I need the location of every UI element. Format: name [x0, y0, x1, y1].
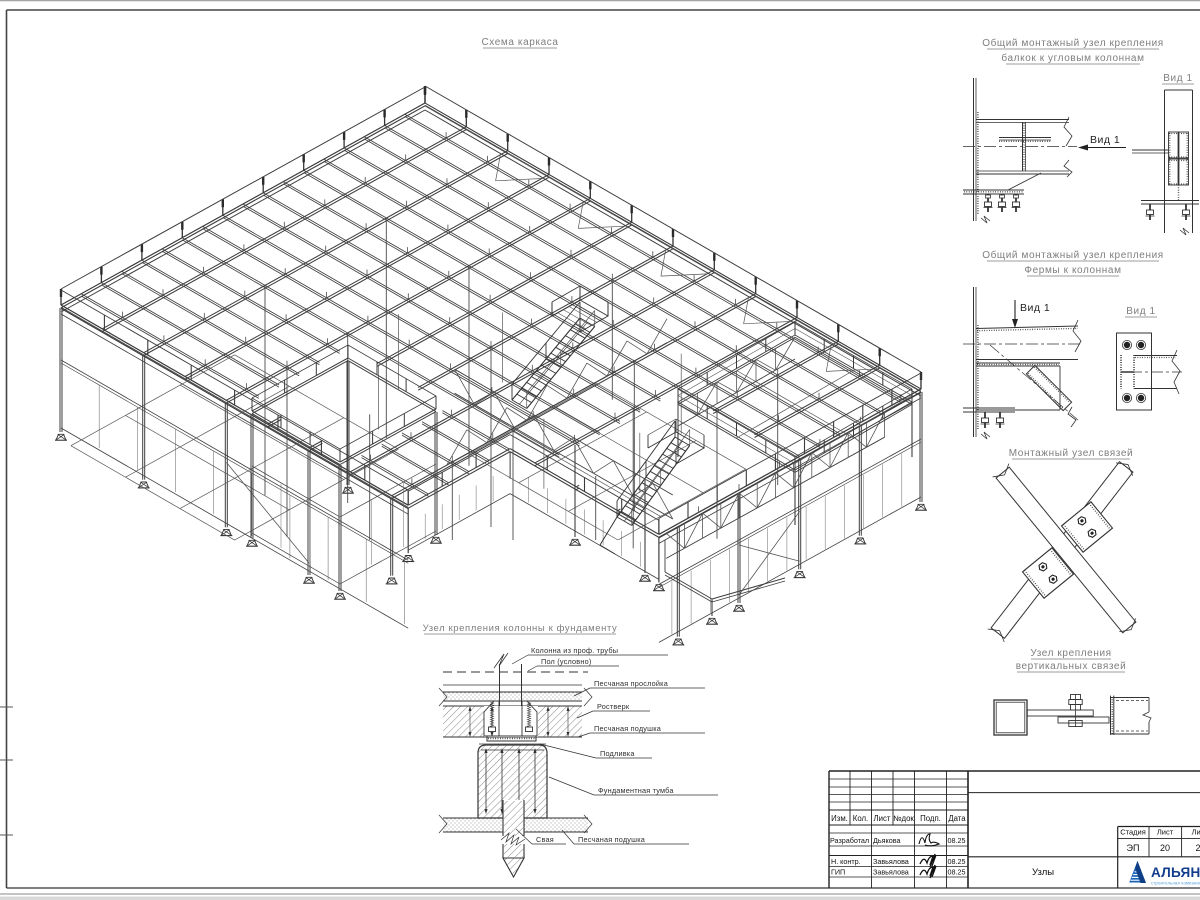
svg-text:строительная компания: строительная компания	[1151, 881, 1200, 886]
svg-text:20: 20	[1160, 843, 1170, 853]
svg-text:Пол (условно): Пол (условно)	[541, 657, 591, 666]
svg-text:Узел крепления: Узел крепления	[1030, 648, 1111, 659]
svg-text:Вид 1: Вид 1	[1090, 134, 1120, 146]
svg-text:08.25: 08.25	[948, 868, 966, 877]
svg-text:Общий монтажный узел крепления: Общий монтажный узел крепления	[982, 37, 1164, 49]
svg-text:Н. контр.: Н. контр.	[831, 857, 861, 866]
svg-text:Вид 1: Вид 1	[1126, 306, 1155, 317]
svg-text:№док: №док	[893, 814, 914, 823]
svg-text:Вид 1: Вид 1	[1020, 302, 1050, 314]
svg-text:Узлы: Узлы	[1032, 867, 1054, 878]
svg-text:Кол.: Кол.	[853, 814, 868, 823]
svg-text:Лист: Лист	[1157, 828, 1174, 837]
svg-text:Фундаментная тумба: Фундаментная тумба	[598, 786, 674, 795]
svg-text:Лист: Лист	[874, 814, 891, 823]
svg-text:Песчаная подушка: Песчаная подушка	[578, 835, 646, 844]
svg-text:Подп.: Подп.	[920, 814, 941, 823]
svg-text:Монтажный узел связей: Монтажный узел связей	[1009, 448, 1133, 459]
svg-text:Изм.: Изм.	[831, 814, 848, 823]
svg-text:Схема каркаса: Схема каркаса	[481, 37, 558, 48]
svg-text:Колонна из проф. трубы: Колонна из проф. трубы	[531, 646, 618, 655]
svg-text:Свая: Свая	[536, 835, 554, 844]
svg-text:Разработал: Разработал	[830, 836, 869, 845]
svg-text:АЛЬЯН: АЛЬЯН	[1151, 865, 1200, 880]
svg-text:балкок к угловым колоннам: балкок к угловым колоннам	[1001, 52, 1144, 64]
svg-text:Фермы к колоннам: Фермы к колоннам	[1024, 265, 1121, 276]
svg-text:Завьялова: Завьялова	[873, 857, 909, 866]
svg-text:Лис: Лис	[1192, 828, 1200, 837]
svg-text:Ростверк: Ростверк	[597, 702, 630, 711]
svg-text:Общий монтажный узел крепления: Общий монтажный узел крепления	[982, 249, 1164, 261]
svg-text:08.25: 08.25	[948, 857, 966, 866]
svg-text:Подливка: Подливка	[600, 749, 635, 758]
svg-text:Дата: Дата	[948, 814, 966, 823]
svg-text:ЭП: ЭП	[1127, 843, 1140, 853]
svg-text:Завьялова: Завьялова	[873, 868, 909, 877]
svg-text:ГИП: ГИП	[831, 868, 845, 877]
svg-text:Дьякова: Дьякова	[873, 836, 900, 845]
svg-text:Узел крепления колонны к фунда: Узел крепления колонны к фундаменту	[423, 623, 618, 634]
svg-text:08.25: 08.25	[948, 836, 966, 845]
svg-text:Песчаная подушка: Песчаная подушка	[594, 724, 662, 733]
svg-text:Стадия: Стадия	[1120, 828, 1146, 837]
svg-text:Вид 1: Вид 1	[1163, 73, 1192, 84]
svg-text:вертикальных связей: вертикальных связей	[1016, 661, 1127, 672]
svg-text:Песчаная прослойка: Песчаная прослойка	[594, 679, 669, 688]
svg-text:2: 2	[1195, 843, 1200, 853]
